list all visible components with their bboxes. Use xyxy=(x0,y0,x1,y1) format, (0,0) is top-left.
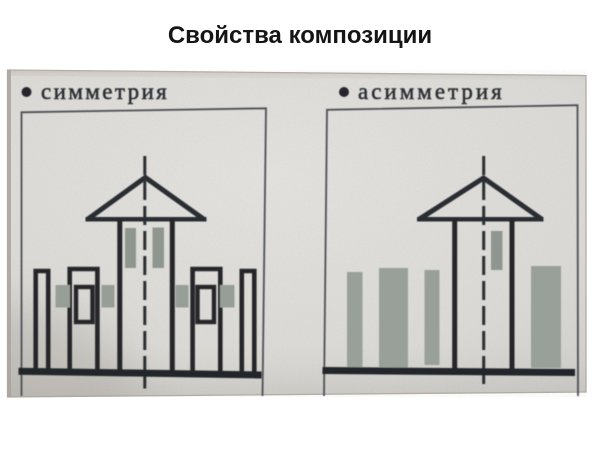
svg-text:асимметрия: асимметрия xyxy=(358,79,505,104)
svg-text:симметрия: симметрия xyxy=(41,79,169,104)
